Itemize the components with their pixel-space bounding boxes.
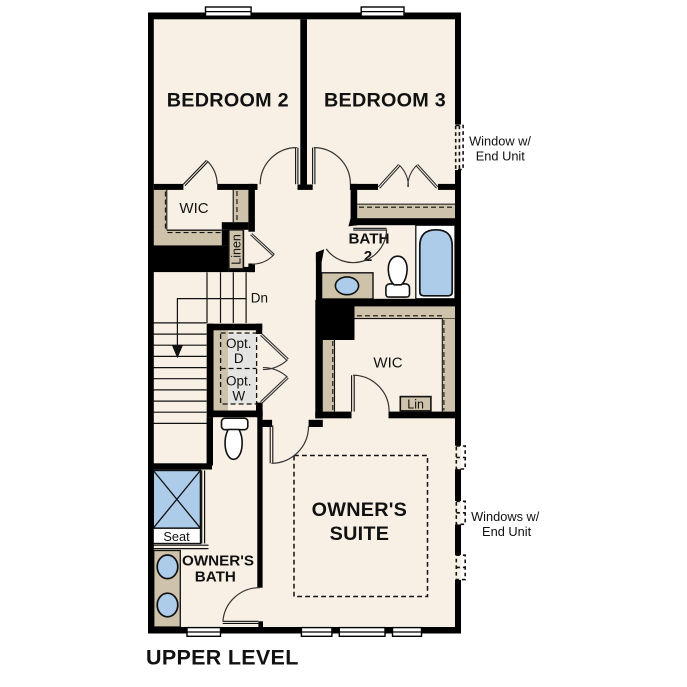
svg-text:OWNER'S: OWNER'S — [312, 499, 407, 521]
svg-text:Lin: Lin — [407, 398, 424, 412]
svg-text:SUITE: SUITE — [330, 523, 390, 545]
svg-text:Windows w/: Windows w/ — [471, 509, 540, 524]
svg-text:WIC: WIC — [179, 200, 208, 217]
svg-text:UPPER LEVEL: UPPER LEVEL — [146, 645, 299, 669]
svg-text:BATH: BATH — [195, 569, 236, 586]
svg-text:Opt.: Opt. — [226, 336, 252, 351]
svg-text:Linen: Linen — [230, 234, 244, 265]
svg-text:Window w/: Window w/ — [469, 133, 531, 148]
svg-text:Dn: Dn — [251, 291, 268, 306]
svg-text:D: D — [234, 351, 244, 366]
svg-text:BEDROOM 3: BEDROOM 3 — [324, 89, 446, 111]
svg-text:End Unit: End Unit — [482, 524, 532, 539]
svg-text:Seat: Seat — [163, 529, 190, 544]
svg-text:End Unit: End Unit — [476, 148, 526, 163]
svg-text:BEDROOM 2: BEDROOM 2 — [167, 90, 289, 112]
svg-text:W: W — [232, 388, 245, 403]
svg-text:OWNER'S: OWNER'S — [182, 553, 254, 570]
svg-text:Opt.: Opt. — [226, 373, 252, 388]
svg-text:WIC: WIC — [373, 355, 402, 372]
svg-text:2: 2 — [364, 248, 372, 265]
